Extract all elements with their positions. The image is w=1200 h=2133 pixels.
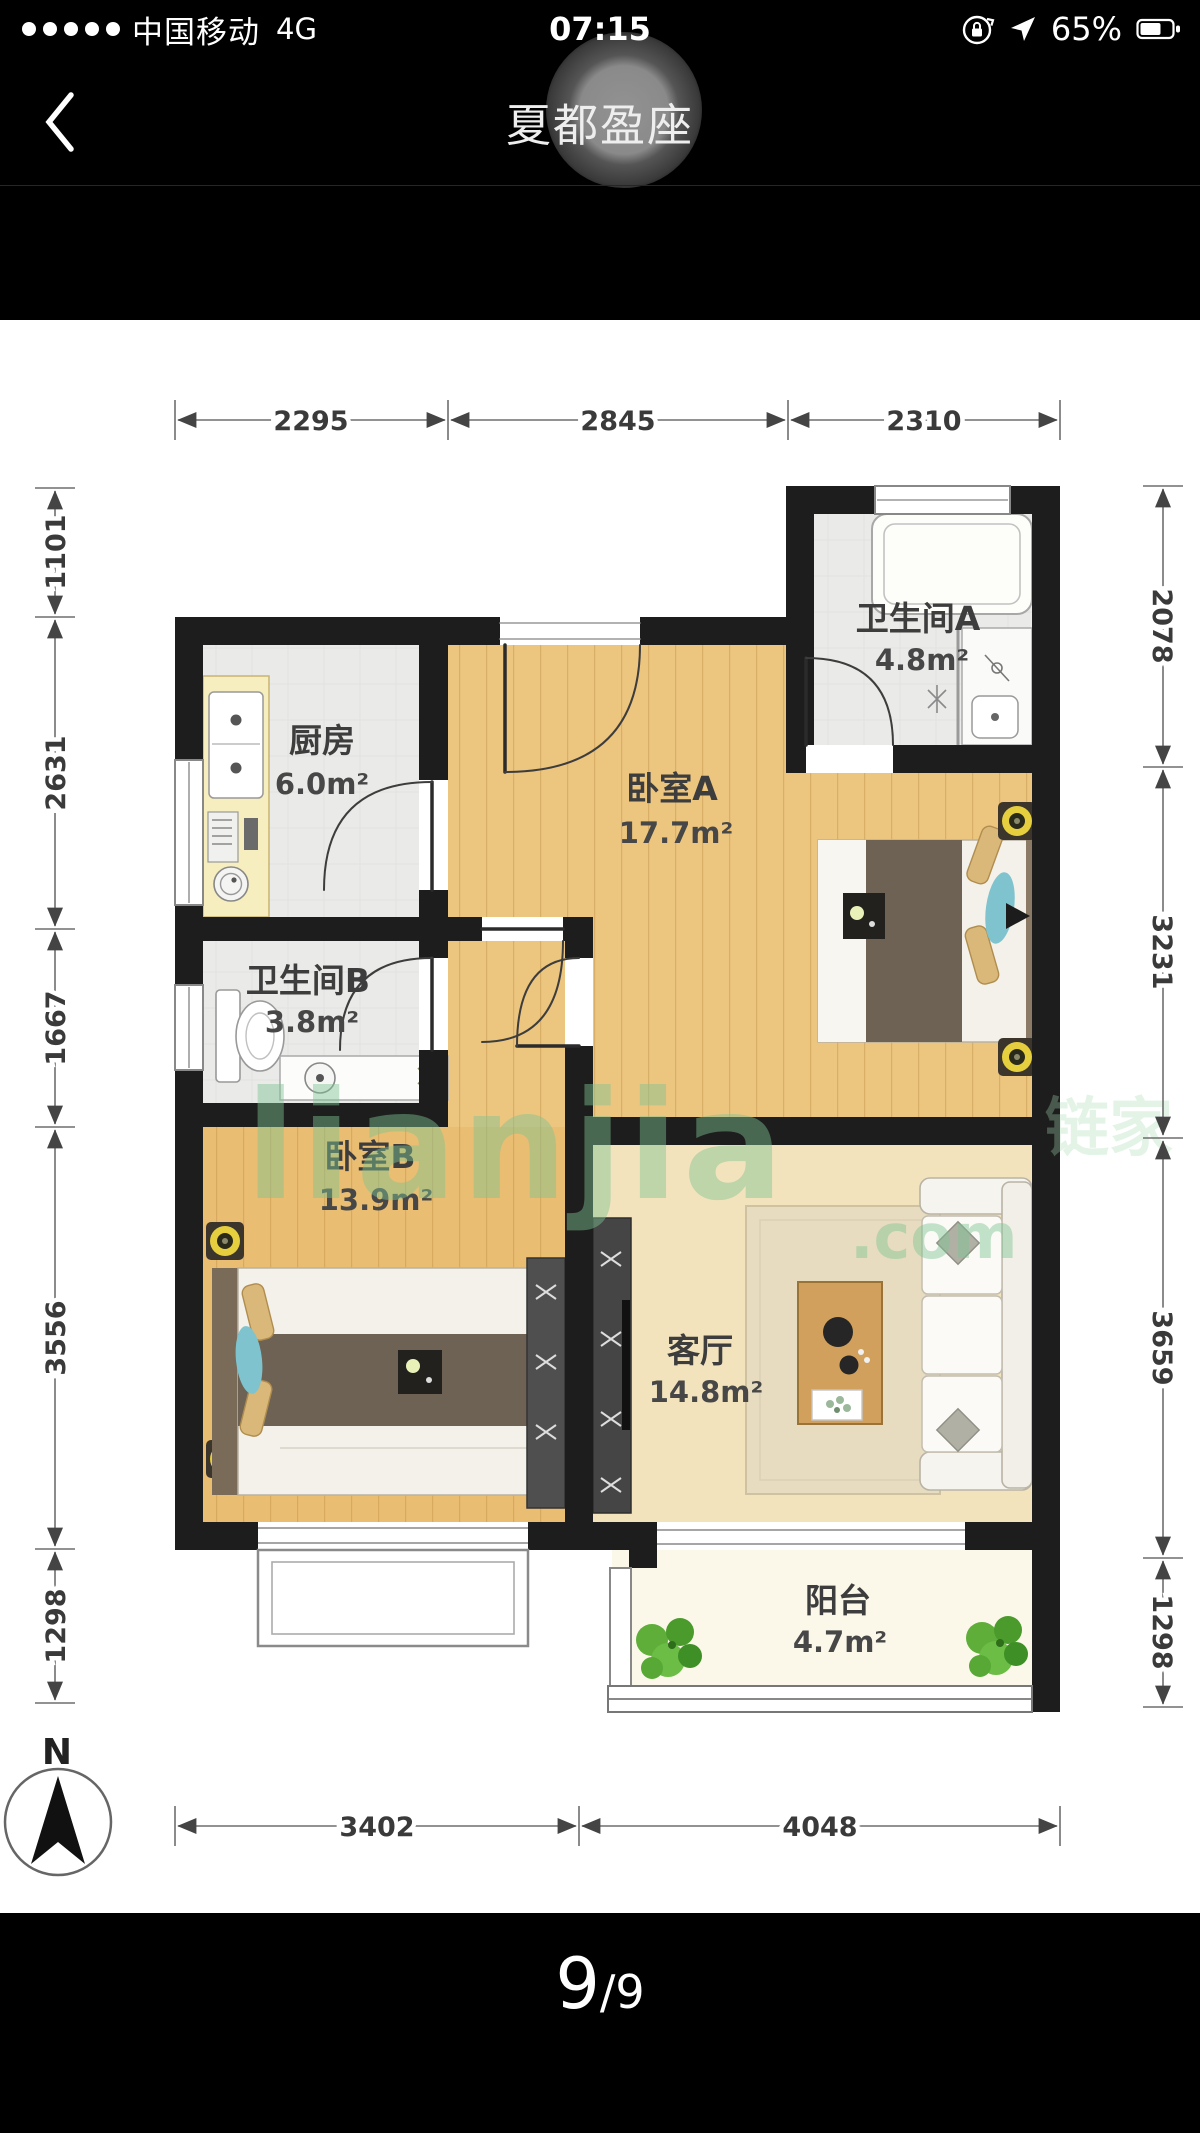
battery-icon	[1136, 17, 1182, 41]
coffee-table	[798, 1282, 882, 1424]
dim-top-3: 2310	[886, 406, 961, 437]
pager-total: /9	[600, 1969, 645, 2015]
dim-right-1: 2078	[1146, 588, 1177, 663]
wall-light-a-bottom	[998, 1038, 1036, 1076]
compass-north-label: N	[42, 1732, 72, 1773]
dim-left-4: 3556	[41, 1300, 72, 1375]
dim-top: 2295 2845 2310	[175, 400, 1060, 440]
dim-left-2: 2631	[41, 735, 72, 810]
bathroom-a-area: 4.8m²	[875, 643, 969, 677]
app-screen: 中国移动 4G 07:15 65%	[0, 0, 1200, 2133]
battery-percent-label: 65%	[1051, 10, 1122, 48]
wall-light-b-top	[206, 1222, 244, 1260]
nav-divider	[0, 185, 1200, 186]
bathroom-a-label: 卫生间A	[856, 599, 981, 638]
floorplan-image[interactable]: 厨房 6.0m² 卫生间A 4.8m² 卧室A 17.7m² 卫生间B 3.8m…	[0, 320, 1200, 1913]
orientation-lock-icon	[961, 12, 995, 46]
wall-light-a-top	[998, 802, 1036, 840]
photo-pager: 9 /9	[0, 1913, 1200, 2133]
bathroom-a-window	[875, 486, 1010, 514]
living-room-area: 14.8m²	[649, 1375, 763, 1409]
bedroom-a-area: 17.7m²	[619, 816, 733, 850]
bed-b	[212, 1268, 540, 1495]
dim-left-5: 1298	[41, 1588, 72, 1663]
bathroom-b-label: 卫生间B	[246, 961, 370, 1000]
page-title: 夏都盈座	[0, 58, 1200, 185]
location-arrow-icon	[1009, 15, 1037, 43]
balcony-side-wall	[610, 1568, 631, 1686]
tv-cabinet	[593, 1218, 631, 1513]
watermark-cn: 链家	[1045, 1092, 1173, 1166]
dim-right-2: 3231	[1146, 914, 1177, 989]
watermark-brand: lianjia	[245, 1060, 788, 1234]
kitchen-area: 6.0m²	[275, 767, 369, 801]
kitchen-label: 厨房	[289, 721, 355, 760]
balcony-railing	[608, 1686, 1032, 1712]
bed-a	[818, 824, 1032, 1044]
dim-bottom-2: 4048	[782, 1812, 857, 1843]
dim-left-3: 1667	[41, 990, 72, 1065]
tv-screen	[622, 1300, 630, 1430]
kitchen-counter	[203, 676, 269, 917]
watermark-tld: .com	[850, 1200, 1018, 1273]
washing-machine	[214, 867, 248, 901]
dim-top-1: 2295	[273, 406, 348, 437]
dim-top-2: 2845	[580, 406, 655, 437]
pager-current: 9	[555, 1949, 600, 2019]
nav-bar: 夏都盈座	[0, 58, 1200, 185]
kitchen-window	[175, 760, 203, 905]
dim-right-4: 1298	[1146, 1594, 1177, 1669]
bedroom-a-label: 卧室A	[626, 769, 718, 808]
top-bars: 中国移动 4G 07:15 65%	[0, 0, 1200, 320]
dim-right-3: 3659	[1146, 1310, 1177, 1385]
bay-window	[258, 1522, 528, 1646]
balcony-sliding-door	[657, 1522, 965, 1550]
balcony-area: 4.7m²	[793, 1625, 887, 1659]
dim-bottom-1: 3402	[339, 1812, 414, 1843]
wardrobe	[527, 1258, 565, 1508]
bathroom-b-area: 3.8m²	[265, 1005, 359, 1039]
living-room-label: 客厅	[667, 1331, 733, 1370]
balcony-label: 阳台	[805, 1581, 871, 1620]
bathroom-b-window	[175, 985, 203, 1070]
status-bar: 中国移动 4G 07:15 65%	[0, 0, 1200, 58]
dim-left-1: 1101	[41, 514, 72, 589]
